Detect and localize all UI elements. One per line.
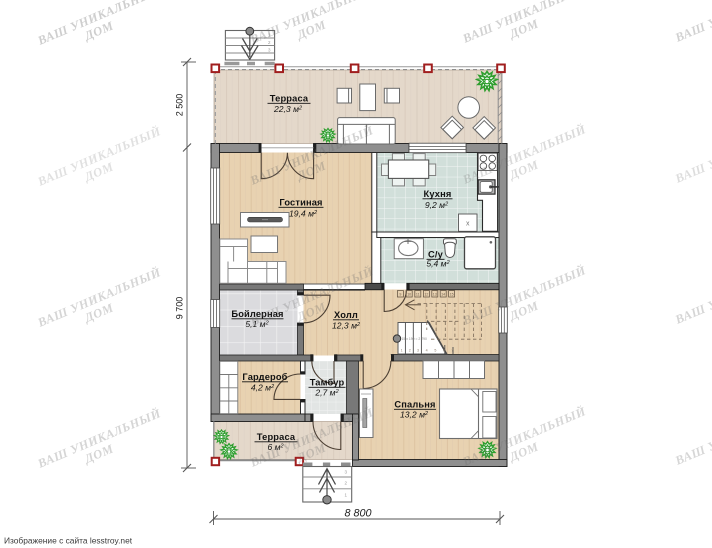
svg-text:12: 12 [424, 292, 428, 296]
svg-text:12,3 м2: 12,3 м2 [332, 321, 360, 331]
svg-text:5,4 м2: 5,4 м2 [426, 259, 449, 269]
svg-text:x: x [466, 221, 470, 228]
svg-text:2: 2 [409, 349, 411, 353]
svg-text:6: 6 [443, 349, 445, 353]
svg-text:2,7 м2: 2,7 м2 [314, 388, 338, 398]
svg-text:13,2 м2: 13,2 м2 [400, 410, 428, 420]
svg-text:Спальня: Спальня [394, 400, 435, 410]
svg-text:4,2 м2: 4,2 м2 [251, 383, 274, 393]
svg-text:14: 14 [441, 292, 445, 296]
svg-text:19,4 м2: 19,4 м2 [289, 209, 317, 219]
svg-text:11: 11 [416, 292, 420, 296]
svg-text:Тамбур: Тамбур [310, 378, 345, 388]
svg-text:9 700: 9 700 [175, 297, 185, 320]
svg-text:15 x 190 = 2 790: 15 x 190 = 2 790 [402, 337, 427, 341]
svg-text:9,2 м2: 9,2 м2 [425, 200, 448, 210]
svg-text:Холл: Холл [334, 310, 358, 320]
svg-text:Гардероб: Гардероб [242, 372, 287, 382]
svg-text:1: 1 [401, 349, 403, 353]
svg-text:15: 15 [450, 292, 454, 296]
svg-text:22,3 м2: 22,3 м2 [273, 104, 302, 114]
svg-text:13: 13 [433, 292, 437, 296]
svg-text:Терраса: Терраса [270, 94, 309, 104]
svg-text:2 500: 2 500 [175, 94, 185, 117]
svg-text:Изображение с сайта lesstroy.n: Изображение с сайта lesstroy.net [4, 536, 133, 546]
svg-text:Гостиная: Гостиная [279, 198, 322, 208]
svg-text:7: 7 [451, 349, 453, 353]
svg-text:4: 4 [426, 349, 428, 353]
svg-text:9: 9 [399, 292, 401, 296]
svg-text:8 800: 8 800 [344, 508, 371, 520]
svg-text:5: 5 [434, 349, 436, 353]
svg-text:10: 10 [407, 292, 411, 296]
svg-text:Кухня: Кухня [424, 189, 452, 199]
svg-text:3: 3 [417, 349, 419, 353]
